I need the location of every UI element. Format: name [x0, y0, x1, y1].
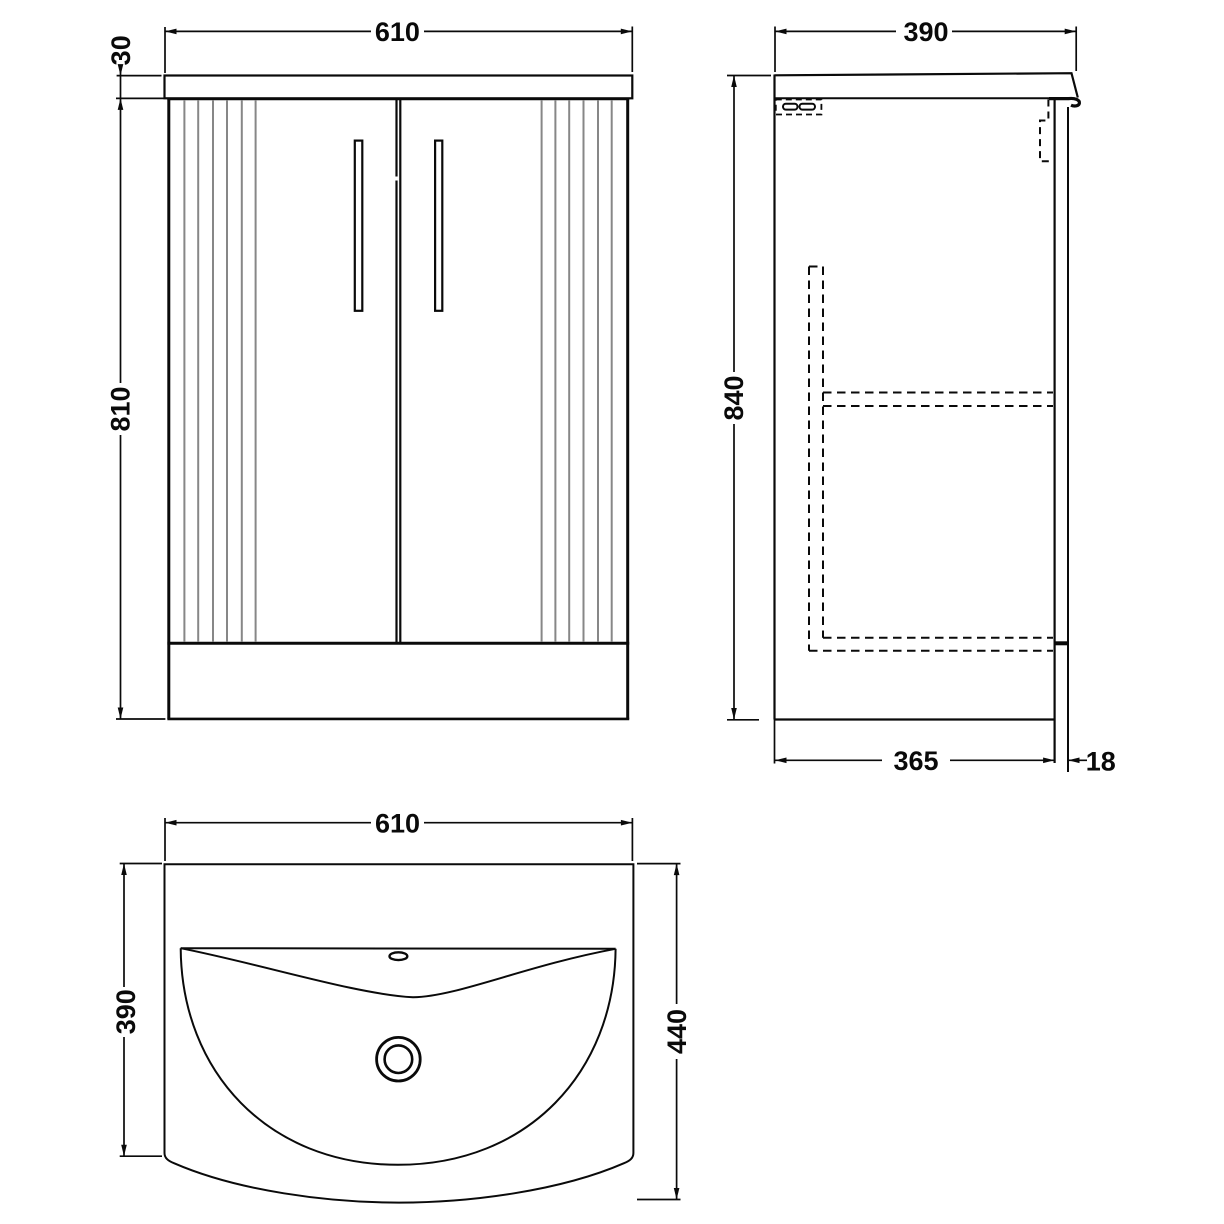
- svg-text:18: 18: [1086, 746, 1116, 776]
- svg-text:390: 390: [111, 989, 141, 1034]
- svg-text:610: 610: [375, 17, 420, 47]
- svg-text:365: 365: [893, 746, 938, 776]
- svg-text:440: 440: [662, 1009, 692, 1054]
- svg-text:840: 840: [719, 375, 749, 420]
- svg-text:610: 610: [375, 808, 420, 838]
- svg-text:30: 30: [106, 35, 136, 65]
- svg-text:810: 810: [106, 386, 136, 431]
- svg-text:390: 390: [903, 17, 948, 47]
